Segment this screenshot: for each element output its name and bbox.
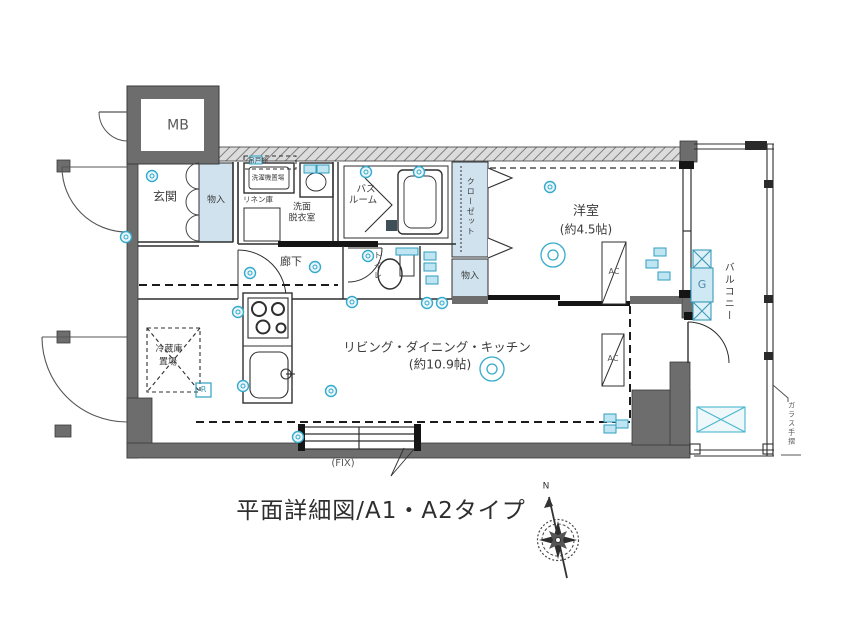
label-ac-unit-2: AC xyxy=(608,355,619,363)
room-label-western-room-size: (約4.5帖) xyxy=(560,224,612,237)
room-label-bathroom-1: バス xyxy=(356,185,375,195)
bathtub xyxy=(398,170,442,234)
room-label-balcony: バルコニー xyxy=(722,262,733,322)
room-label-toilet: トイレ xyxy=(373,251,381,281)
room-label-ldk-size: (約10.9帖) xyxy=(409,357,472,370)
room-label-washroom-2: 脱衣室 xyxy=(288,214,315,223)
drawing-title: 平面詳細図/A1・A2タイプ xyxy=(236,499,525,523)
ceiling-light-symbol xyxy=(541,243,565,267)
room-label-corridor: 廊下 xyxy=(280,256,302,268)
room-label-storage2: 物入 xyxy=(461,272,479,281)
label-glass-railing: ガラス手摺 xyxy=(787,402,794,447)
closet-door-right xyxy=(488,238,512,258)
ldk-sliding-door xyxy=(452,295,682,306)
closet-door-left xyxy=(488,168,512,188)
label-range-mark: R xyxy=(201,386,207,394)
label-refrigerator-1: 冷蔵庫 xyxy=(155,345,182,354)
room-label-bathroom-2: ルーム xyxy=(349,196,377,206)
common-corridor-wall-hatched xyxy=(219,147,697,161)
room-label-entrance-storage: 物入 xyxy=(207,196,225,205)
room-label-closet: クローゼット xyxy=(466,177,474,237)
room-label-ldk: リビング・ダイニング・キッチン xyxy=(343,340,531,353)
floorplan-canvas: MB 玄関 物入 吊戸棚 洗濯機置場 リネン庫 洗面 脱衣室 バス ルーム トイ… xyxy=(0,0,867,629)
label-refrigerator-2: 置場 xyxy=(159,358,177,367)
meter-box xyxy=(99,86,219,164)
label-linen-storage: リネン庫 xyxy=(243,196,273,204)
label-fix-window: (FIX) xyxy=(331,459,354,470)
compass-north-label: N xyxy=(543,482,550,491)
sliding-door-bar xyxy=(278,241,378,247)
room-label-western-room: 洋室 xyxy=(573,205,599,219)
compass-rose xyxy=(538,497,579,578)
ceiling-light-symbol xyxy=(480,357,504,381)
label-ac-unit-1: AC xyxy=(609,268,620,276)
evacuation-hatch xyxy=(697,407,745,432)
ac-unit-boxes xyxy=(602,242,626,386)
glass-railing-leader xyxy=(773,385,788,402)
balcony-door-arc xyxy=(688,322,729,363)
room-label-mb: MB xyxy=(167,119,189,134)
entry-door-arcs xyxy=(42,167,127,422)
room-label-washroom-1: 洗面 xyxy=(293,203,311,212)
floorplan-drawing xyxy=(0,0,867,629)
balcony-area xyxy=(690,141,801,456)
linen-cabinet xyxy=(244,208,280,241)
label-gas-meter: G xyxy=(698,279,707,291)
room-label-entrance: 玄関 xyxy=(153,191,177,204)
label-washing-machine: 洗濯機置場 xyxy=(252,175,285,182)
label-hanging-cupboard: 吊戸棚 xyxy=(248,158,268,165)
